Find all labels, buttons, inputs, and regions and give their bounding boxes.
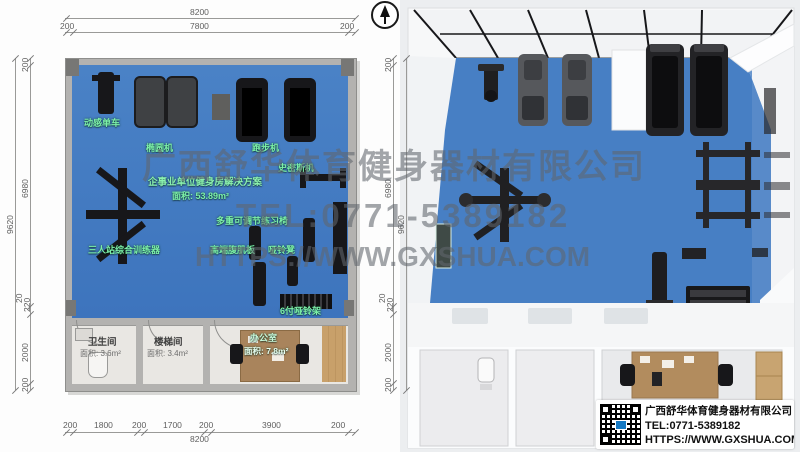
dim-right-v5: 2000: [384, 343, 393, 362]
label-stairwell: 楼梯间: [154, 338, 183, 348]
label-dumbbell-bench: 哑铃凳: [268, 246, 295, 255]
label-bathroom: 卫生间: [88, 338, 117, 348]
wall-rack-icon-2d: [333, 202, 347, 274]
ab-board-icon-2d: [253, 262, 266, 306]
dim-line-left-total: [15, 58, 16, 390]
label-smith: 史密斯机: [278, 164, 314, 173]
dim-line-right-total: [406, 58, 407, 390]
elliptical-icon-2d: [134, 76, 166, 128]
column: [612, 50, 646, 130]
dim-b1: 200: [63, 421, 77, 430]
bench-reflection: [752, 248, 768, 257]
dumbbell-bench-icon-2d: [287, 256, 298, 286]
area-stairwell: 面积: 3.4m²: [147, 350, 188, 358]
office-chair-icon-2d: [296, 344, 309, 364]
dim-b2: 1800: [94, 421, 113, 430]
label-ab-board: 高端腹肌板: [210, 246, 255, 255]
elliptical-icon-3d: [562, 54, 592, 126]
dim-v5: 2000: [21, 343, 30, 362]
door: [436, 224, 451, 268]
qr-code-icon: [600, 404, 641, 445]
pillar: [66, 300, 76, 316]
dim-right-v1: 200: [384, 58, 393, 72]
bench-icon-2d: [303, 218, 315, 262]
dim-bottom-total: 8200: [190, 435, 209, 444]
label-treadmill: 跑步机: [252, 144, 279, 153]
label-multi-station: 三人站综合训练器: [88, 246, 160, 255]
pillar: [341, 59, 354, 76]
treadmill-belt: [290, 88, 310, 136]
office-wood-floor: [322, 326, 346, 382]
dim-right-v6: 200: [384, 378, 393, 392]
elliptical-icon-3d: [518, 54, 548, 126]
dim-b7: 200: [331, 421, 345, 430]
pillar: [212, 94, 230, 120]
treadmill-icon-3d: [646, 44, 684, 136]
bathroom-3d: [420, 350, 508, 446]
rack-icon-3d: [696, 142, 760, 228]
dim-v1: 200: [21, 58, 30, 72]
pillar: [66, 59, 79, 76]
smith-post: [340, 168, 346, 188]
logo-box: 广西舒华体育健身器材有限公司 TEL:0771-5389182 HTTPS://…: [596, 400, 794, 449]
dim-line-right-seg: [393, 58, 394, 390]
spin-bike-handle-icon: [92, 75, 120, 81]
dim-line-top-total: [65, 18, 355, 19]
stairwell-3d: [516, 350, 594, 446]
plan-title: 企事业单位健身房解决方案: [148, 178, 262, 188]
treadmill-reflection: [764, 88, 776, 134]
dim-b4: 1700: [163, 421, 182, 430]
toilet-icon-3d: [478, 358, 494, 382]
logo-tel: TEL:0771-5389182: [645, 420, 794, 432]
area-bathroom: 面积: 3.6m²: [80, 350, 121, 358]
dim-top-total: 8200: [190, 8, 209, 17]
label-spin-bike: 动感单车: [84, 119, 120, 128]
dim-right-total: 9620: [397, 215, 406, 234]
label-elliptical: 椭圆机: [146, 144, 173, 153]
dim-left-total: 9620: [6, 215, 15, 234]
render-3d-panel: [400, 0, 800, 452]
logo-url: HTTPS://WWW.GXSHUA.COM: [645, 434, 794, 446]
plan-area: 面积: 53.89m²: [172, 192, 229, 201]
label-dumbbell-rack: 6付哑铃架: [280, 307, 321, 316]
office-desk-icon-3d: [620, 352, 733, 398]
dim-line-left-seg: [30, 58, 31, 390]
office-chair-icon-2d: [230, 344, 243, 364]
pillar: [344, 300, 354, 316]
multi-station-bar: [86, 210, 160, 219]
dim-line-top-seg: [65, 32, 355, 33]
bench-icon-3d: [682, 248, 706, 259]
dim-right-v3: 220: [386, 298, 395, 312]
dim-top-right: 200: [340, 22, 354, 31]
treadmill-icon-3d: [690, 44, 728, 136]
dim-top-left: 200: [60, 22, 74, 31]
logo-company: 广西舒华体育健身器材有限公司: [645, 403, 794, 418]
treadmill-belt: [242, 88, 262, 136]
dim-right-v2: 6980: [384, 179, 393, 198]
render-3d-scene: [400, 0, 800, 452]
dim-top-mid: 7800: [190, 22, 209, 31]
elliptical-icon-2d: [166, 76, 198, 128]
label-office: 办公室: [250, 334, 277, 343]
label-adjustable-bench: 多重可调节练习椅: [216, 217, 288, 226]
area-office: 面积: 7.8m²: [244, 347, 288, 356]
dim-b6: 3900: [262, 421, 281, 430]
dim-v3: 220: [23, 298, 32, 312]
dim-v2: 6980: [21, 179, 30, 198]
dim-v6: 200: [21, 378, 30, 392]
north-arrow-icon: [371, 1, 399, 29]
design-sheet: 动感单车 椭圆机 跑步机 史密斯机 企事业单位健身房解决方案 面积: 53.89…: [0, 0, 800, 452]
